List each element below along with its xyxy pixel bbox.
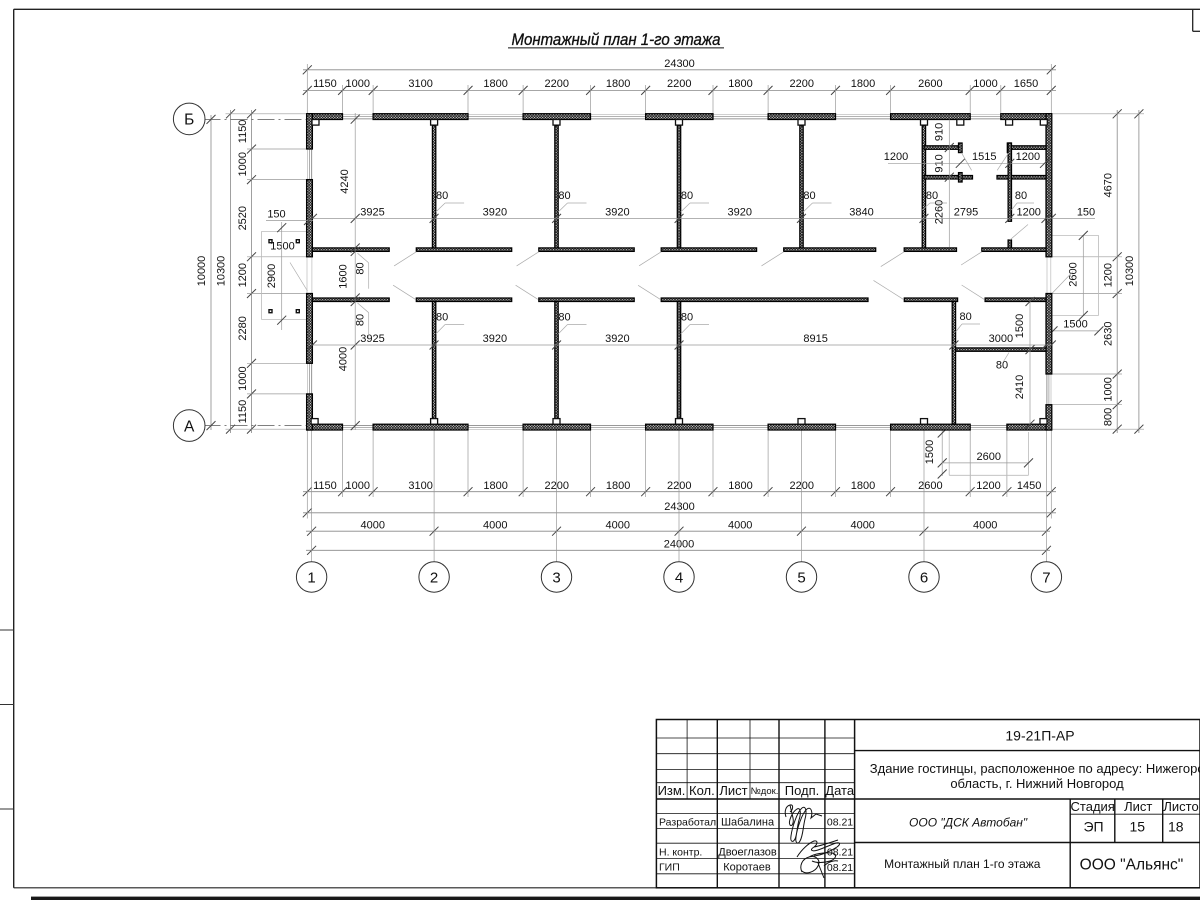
svg-text:1200: 1200 <box>237 263 249 287</box>
svg-text:1200: 1200 <box>1016 206 1040 218</box>
svg-text:ЭП: ЭП <box>1083 819 1103 835</box>
svg-text:24300: 24300 <box>664 501 695 513</box>
svg-text:5: 5 <box>797 569 805 586</box>
svg-text:ГИП: ГИП <box>659 862 680 874</box>
svg-text:80: 80 <box>558 312 570 324</box>
svg-text:1515: 1515 <box>972 151 996 163</box>
svg-text:2600: 2600 <box>977 451 1001 463</box>
svg-text:1150: 1150 <box>313 78 337 90</box>
svg-text:3840: 3840 <box>849 206 873 218</box>
svg-text:2: 2 <box>430 569 438 586</box>
svg-text:Подп.: Подп. <box>785 783 820 798</box>
svg-text:4000: 4000 <box>850 519 874 531</box>
svg-text:80: 80 <box>1015 190 1027 202</box>
svg-text:2795: 2795 <box>954 206 978 218</box>
svg-text:6: 6 <box>920 569 928 586</box>
svg-text:1800: 1800 <box>606 480 630 492</box>
svg-text:08.21: 08.21 <box>827 862 853 874</box>
svg-text:1150: 1150 <box>237 120 249 144</box>
svg-text:1200: 1200 <box>1016 151 1040 163</box>
svg-text:7: 7 <box>1042 569 1050 586</box>
svg-text:3920: 3920 <box>728 206 752 218</box>
svg-text:1800: 1800 <box>483 480 507 492</box>
svg-text:15: 15 <box>1130 819 1146 835</box>
svg-text:Дата: Дата <box>825 783 855 798</box>
svg-text:3920: 3920 <box>605 333 629 345</box>
svg-text:№док.: №док. <box>751 786 779 797</box>
svg-text:4000: 4000 <box>483 519 507 531</box>
svg-text:3925: 3925 <box>360 206 384 218</box>
svg-text:2900: 2900 <box>266 264 278 288</box>
svg-text:1800: 1800 <box>851 78 875 90</box>
svg-text:ООО "Альянс": ООО "Альянс" <box>1080 857 1184 874</box>
svg-text:10000: 10000 <box>196 256 208 287</box>
svg-text:80: 80 <box>558 190 570 202</box>
svg-text:1500: 1500 <box>270 240 294 252</box>
svg-text:80: 80 <box>354 314 366 326</box>
svg-text:2200: 2200 <box>667 78 691 90</box>
svg-text:1200: 1200 <box>976 480 1000 492</box>
svg-text:4000: 4000 <box>337 347 349 371</box>
svg-text:1800: 1800 <box>606 78 630 90</box>
svg-text:4000: 4000 <box>606 519 630 531</box>
svg-text:80: 80 <box>803 190 815 202</box>
svg-text:3920: 3920 <box>483 206 507 218</box>
svg-text:2600: 2600 <box>1068 262 1080 286</box>
svg-text:1650: 1650 <box>1014 78 1038 90</box>
svg-text:08.21: 08.21 <box>827 817 853 829</box>
svg-text:80: 80 <box>959 311 971 323</box>
svg-text:Лист: Лист <box>719 783 747 798</box>
svg-text:1150: 1150 <box>237 400 249 424</box>
svg-text:1200: 1200 <box>884 151 908 163</box>
svg-text:1200: 1200 <box>1102 263 1114 287</box>
svg-text:1000: 1000 <box>1102 377 1114 401</box>
svg-text:1450: 1450 <box>1017 480 1041 492</box>
svg-text:1000: 1000 <box>237 366 249 390</box>
svg-text:2520: 2520 <box>237 206 249 230</box>
svg-text:19-21П-АР: 19-21П-АР <box>1005 728 1074 744</box>
svg-text:Изм.: Изм. <box>658 783 686 798</box>
svg-text:18: 18 <box>1168 819 1184 835</box>
svg-text:Стадия: Стадия <box>1071 799 1115 814</box>
svg-text:4000: 4000 <box>361 519 385 531</box>
svg-text:3100: 3100 <box>408 480 432 492</box>
svg-text:1000: 1000 <box>973 78 997 90</box>
svg-text:800: 800 <box>1102 408 1114 426</box>
svg-text:150: 150 <box>267 208 285 220</box>
svg-text:1150: 1150 <box>313 480 337 492</box>
svg-text:3: 3 <box>552 569 560 586</box>
svg-text:область, г. Нижний Новгород: область, г. Нижний Новгород <box>950 776 1124 791</box>
svg-text:1000: 1000 <box>346 480 370 492</box>
svg-text:1000: 1000 <box>346 78 370 90</box>
svg-text:Н. контр.: Н. контр. <box>659 846 702 858</box>
svg-text:1800: 1800 <box>851 480 875 492</box>
svg-text:А: А <box>184 418 195 435</box>
svg-text:80: 80 <box>354 262 366 274</box>
svg-text:2600: 2600 <box>918 480 942 492</box>
svg-text:2280: 2280 <box>237 316 249 340</box>
svg-text:4000: 4000 <box>728 519 752 531</box>
svg-text:1500: 1500 <box>1014 314 1026 338</box>
svg-text:1600: 1600 <box>337 264 349 288</box>
svg-text:1800: 1800 <box>483 78 507 90</box>
svg-text:910: 910 <box>934 123 946 141</box>
svg-text:4240: 4240 <box>339 169 351 193</box>
svg-text:Листов: Листов <box>1163 799 1200 814</box>
svg-text:Разработал: Разработал <box>659 816 716 828</box>
svg-text:80: 80 <box>436 312 448 324</box>
svg-text:Коротаев: Коротаев <box>723 862 771 874</box>
svg-text:8915: 8915 <box>803 333 827 345</box>
svg-text:1800: 1800 <box>728 480 752 492</box>
svg-text:3100: 3100 <box>408 78 432 90</box>
svg-text:2600: 2600 <box>918 78 942 90</box>
svg-text:2260: 2260 <box>934 200 946 224</box>
svg-text:Монтажный план 1-го этажа: Монтажный план 1-го этажа <box>884 857 1041 871</box>
svg-text:2630: 2630 <box>1102 322 1114 346</box>
svg-text:3920: 3920 <box>605 206 629 218</box>
svg-text:10300: 10300 <box>1124 256 1136 287</box>
svg-text:Лист: Лист <box>1124 799 1152 814</box>
svg-text:80: 80 <box>681 312 693 324</box>
svg-text:24300: 24300 <box>664 58 695 70</box>
svg-text:Б: Б <box>184 112 194 129</box>
svg-text:2410: 2410 <box>1014 375 1026 399</box>
svg-text:4: 4 <box>675 569 683 586</box>
svg-text:3925: 3925 <box>360 333 384 345</box>
svg-text:3920: 3920 <box>483 333 507 345</box>
svg-text:80: 80 <box>996 360 1008 372</box>
svg-text:10300: 10300 <box>216 256 228 287</box>
svg-text:2200: 2200 <box>545 78 569 90</box>
svg-text:80: 80 <box>436 190 448 202</box>
svg-text:3000: 3000 <box>989 333 1013 345</box>
svg-text:ООО "ДСК Автобан": ООО "ДСК Автобан" <box>909 816 1028 830</box>
svg-text:2200: 2200 <box>790 78 814 90</box>
svg-text:Шабалина: Шабалина <box>721 816 775 828</box>
svg-text:80: 80 <box>681 190 693 202</box>
svg-text:Здание гостинцы, расположенное: Здание гостинцы, расположенное по адресу… <box>870 761 1200 776</box>
svg-text:1: 1 <box>307 569 315 586</box>
svg-text:1500: 1500 <box>1063 319 1087 331</box>
svg-text:1500: 1500 <box>924 440 936 464</box>
svg-text:4670: 4670 <box>1102 173 1114 197</box>
svg-text:Монтажный план 1-го этажа: Монтажный план 1-го этажа <box>512 30 721 49</box>
svg-text:Кол.: Кол. <box>689 783 715 798</box>
svg-text:150: 150 <box>1077 206 1095 218</box>
svg-text:4000: 4000 <box>973 519 997 531</box>
svg-text:1800: 1800 <box>728 78 752 90</box>
svg-text:Двоеглазов: Двоеглазов <box>718 846 777 858</box>
svg-text:1000: 1000 <box>237 152 249 176</box>
